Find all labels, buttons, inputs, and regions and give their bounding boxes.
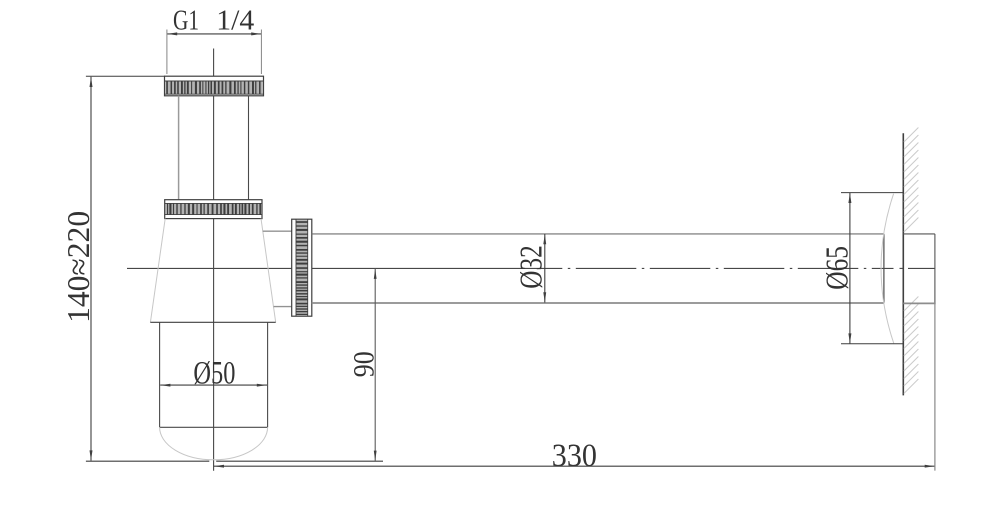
svg-text:Ø32: Ø32 <box>512 245 548 288</box>
svg-text:Ø65: Ø65 <box>819 246 855 290</box>
svg-text:G1: G1 <box>173 5 199 37</box>
svg-text:330: 330 <box>552 438 597 474</box>
svg-text:1/4: 1/4 <box>216 5 255 37</box>
svg-text:Ø50: Ø50 <box>193 355 235 391</box>
